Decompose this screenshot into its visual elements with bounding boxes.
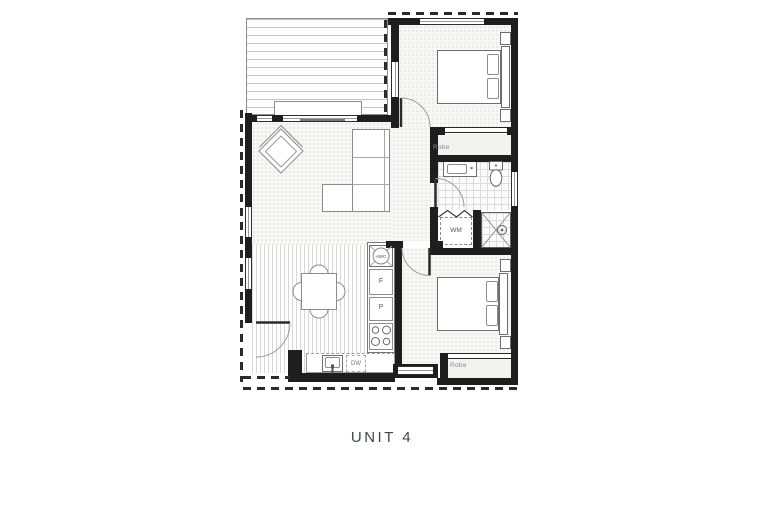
toilet-bowl xyxy=(490,170,502,186)
dining-chair xyxy=(293,283,302,301)
burner xyxy=(372,338,380,346)
unit-title: UNIT 4 xyxy=(282,429,482,447)
dining-chair xyxy=(337,283,346,301)
sink-faucet-dot xyxy=(331,364,334,367)
door-swing-bedroom2 xyxy=(402,248,430,276)
dining-chair xyxy=(310,265,328,274)
robe1-label: Robe xyxy=(433,144,463,152)
burner xyxy=(372,327,379,334)
door-swing-entry xyxy=(256,323,290,357)
toilet-button xyxy=(495,164,497,166)
pantry-label: P xyxy=(369,303,393,313)
floor-plan-unit-4: Robe Robe HWC F P WM DW UNIT 4 xyxy=(0,0,768,512)
dining-chair xyxy=(310,310,328,319)
hwc-label: HWC xyxy=(369,253,393,260)
dishwasher-label: DW xyxy=(346,359,366,369)
fridge-label: F xyxy=(369,277,393,287)
robe2-label: Robe xyxy=(450,362,480,370)
bifold-doors xyxy=(439,211,473,218)
shower-head-center xyxy=(501,229,504,232)
door-swing-bathroom xyxy=(436,179,465,208)
washing-machine-label: WM xyxy=(440,226,472,236)
burner xyxy=(383,326,391,334)
door-swing-bedroom1 xyxy=(401,98,430,127)
burner xyxy=(383,338,390,345)
vanity-tap xyxy=(470,167,473,170)
